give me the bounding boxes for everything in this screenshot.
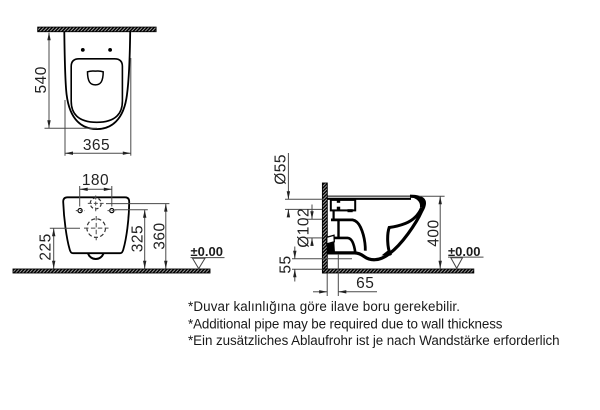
svg-text:540: 540 — [33, 66, 50, 93]
svg-text:Ø55: Ø55 — [273, 154, 290, 185]
svg-text:360: 360 — [151, 222, 168, 249]
svg-text:±0.00: ±0.00 — [191, 244, 223, 259]
svg-text:365: 365 — [83, 137, 110, 154]
svg-text:325: 325 — [129, 225, 146, 252]
svg-text:65: 65 — [356, 275, 374, 292]
svg-text:55: 55 — [278, 255, 295, 273]
svg-text:Ø102: Ø102 — [296, 208, 313, 248]
svg-text:400: 400 — [426, 219, 443, 246]
svg-text:*Additional pipe may be requir: *Additional pipe may be required due to … — [188, 317, 503, 332]
svg-text:*Duvar kalınlığına göre ilave: *Duvar kalınlığına göre ilave boru gerek… — [188, 299, 460, 314]
svg-text:225: 225 — [37, 233, 54, 260]
svg-text:±0.00: ±0.00 — [448, 244, 480, 259]
svg-text:*Ein zusätzliches Ablaufrohr i: *Ein zusätzliches Ablaufrohr ist je nach… — [188, 333, 560, 348]
svg-text:180: 180 — [82, 172, 109, 189]
